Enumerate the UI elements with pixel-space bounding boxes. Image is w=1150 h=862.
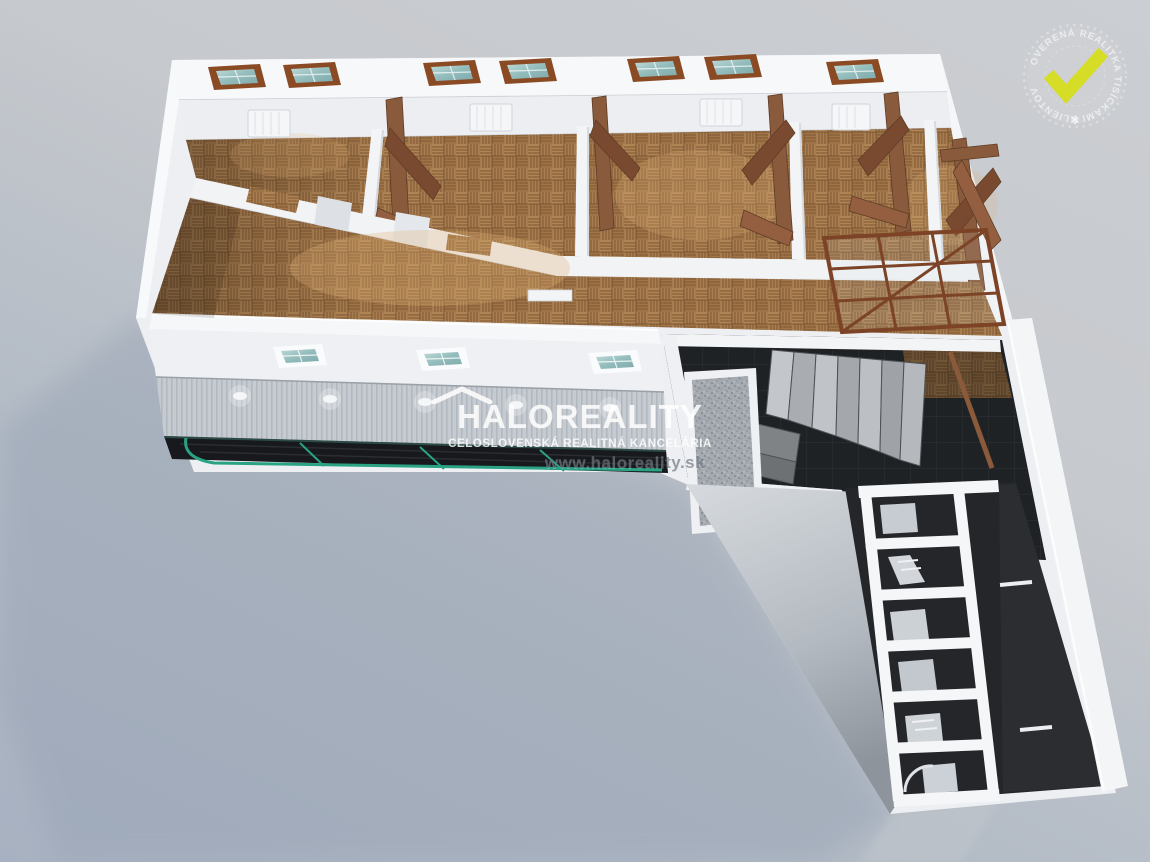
radiator bbox=[470, 104, 512, 131]
floorplan-3d-scene bbox=[0, 0, 1150, 862]
floor-plan-render: HALOREALITY CELOSLOVENSKÁ REALITNÁ KANCE… bbox=[0, 0, 1150, 862]
radiator bbox=[832, 104, 870, 130]
stairwell-wood-railing bbox=[824, 230, 1004, 332]
radiator bbox=[248, 110, 290, 137]
radiator bbox=[700, 99, 742, 126]
hall-radiator bbox=[528, 290, 572, 301]
top-roof-strip bbox=[172, 54, 947, 100]
